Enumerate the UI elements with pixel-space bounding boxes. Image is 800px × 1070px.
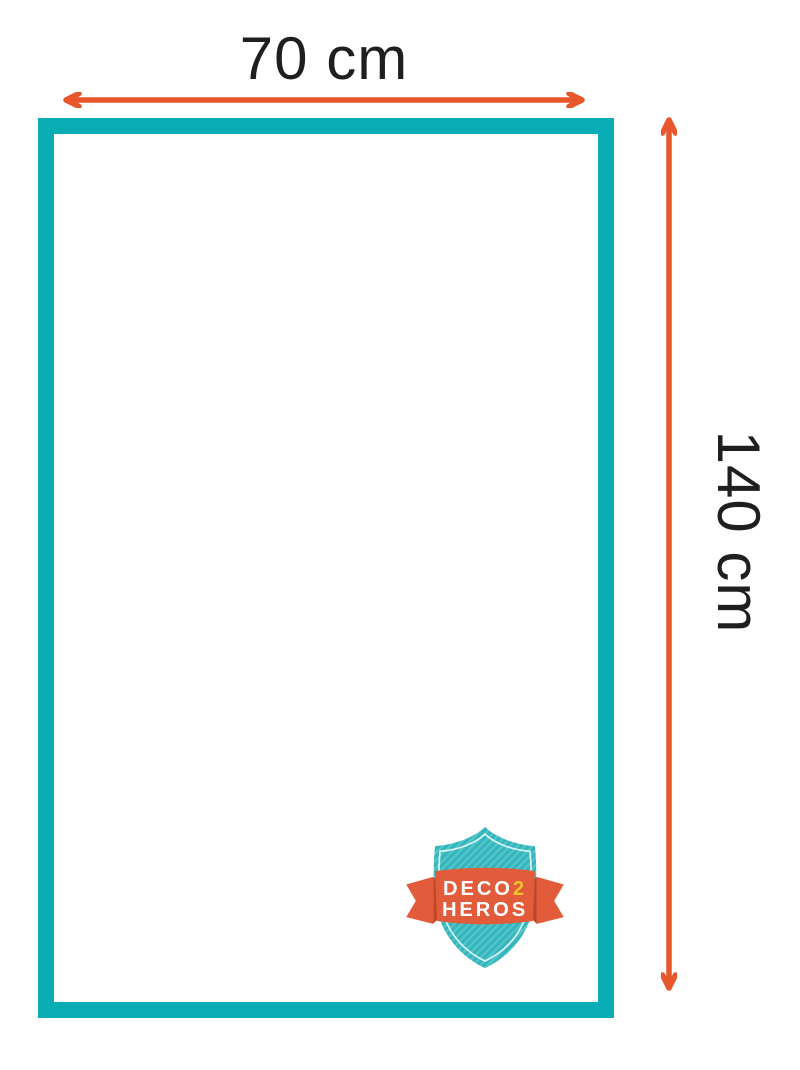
width-arrow bbox=[62, 92, 586, 108]
width-arrow-strokes bbox=[66, 94, 582, 107]
ribbon-left-tail bbox=[406, 877, 433, 924]
height-dimension-label: 140 cm bbox=[707, 422, 769, 642]
ribbon-right-tail bbox=[537, 877, 564, 924]
product-dimension-diagram: 70 cm 140 cm bbox=[0, 0, 800, 1070]
logo-text-2: 2 bbox=[513, 878, 527, 900]
height-arrow-strokes bbox=[663, 120, 676, 988]
width-dimension-label: 70 cm bbox=[124, 28, 524, 90]
logo-text-deco: DECO bbox=[443, 878, 513, 900]
logo-text-line2: HEROS bbox=[442, 899, 528, 921]
height-arrow bbox=[661, 116, 677, 992]
deco2heros-logo: DECO2 HEROS bbox=[403, 824, 567, 970]
logo-text-line1: DECO2 bbox=[443, 878, 527, 900]
